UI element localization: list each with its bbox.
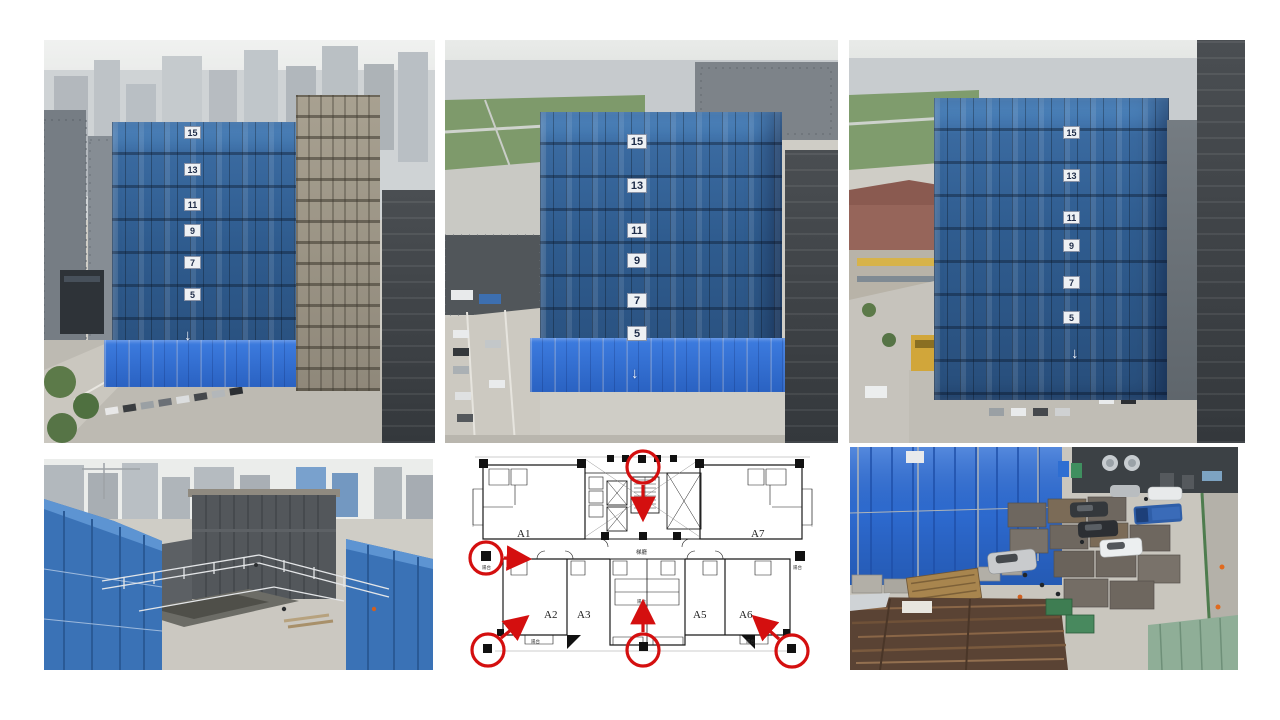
podium-blue-tarp <box>530 338 785 392</box>
marker-arrow-southeast <box>754 617 779 639</box>
left-parking-lanes <box>445 308 540 443</box>
unit-label-A1: A1 <box>517 528 530 540</box>
traffic-cone <box>1220 565 1225 570</box>
balcony-label: 陽台 <box>531 638 540 645</box>
white-tarp <box>902 601 932 613</box>
floor-sign-5: 5 <box>184 288 201 301</box>
tree <box>73 393 99 419</box>
neighbor-building <box>1072 447 1238 493</box>
unit-label-A3: A3 <box>577 609 591 621</box>
floor-sign-11: 11 <box>1063 211 1080 224</box>
warehouse <box>445 235 540 315</box>
unit-label-A5: A5 <box>693 609 707 621</box>
floor-sign-13: 13 <box>184 163 201 176</box>
concrete-core <box>188 489 340 599</box>
hoist-down-arrow-icon: ↓ <box>631 366 639 381</box>
floor-plan-drawing: A1 A2 A3 A5 A6 A7 梯廳 陽台 陽台 陽台 陽台 陽台 <box>455 447 830 675</box>
balcony-label: 陽台 <box>482 564 491 571</box>
scaffold-mesh-right <box>346 539 433 670</box>
portable-toilet-blue <box>1058 461 1069 477</box>
unit-label-A2: A2 <box>544 609 557 621</box>
tree <box>44 366 76 398</box>
unit-label-A7: A7 <box>751 528 765 540</box>
rebar-pile <box>850 593 1068 670</box>
floor-sign-9: 9 <box>627 253 647 268</box>
lobby-label: 梯廳 <box>636 548 648 556</box>
floor-sign-11: 11 <box>627 223 647 238</box>
floor-sign-5: 5 <box>627 326 647 341</box>
tower-blue-mesh <box>934 98 1169 400</box>
progress-photo-montage: 15 13 11 9 7 5 ↓ <box>0 0 1280 720</box>
floor-sign-13: 13 <box>1063 169 1080 182</box>
aerial-photo-northwest: 15 13 11 9 7 5 ↓ <box>44 40 435 443</box>
unit-label-A6: A6 <box>739 609 753 621</box>
site-yard-scene <box>850 447 1238 670</box>
floor-plan-diagram: A1 A2 A3 A5 A6 A7 梯廳 陽台 陽台 陽台 陽台 陽台 <box>455 447 830 675</box>
floor-sign-7: 7 <box>627 293 647 308</box>
floor-sign-7: 7 <box>1063 276 1080 289</box>
floor-sign-11: 11 <box>184 198 201 211</box>
blue-truck <box>1133 503 1182 524</box>
permit-sign <box>906 451 924 463</box>
hoist-down-arrow-icon: ↓ <box>1071 346 1079 361</box>
site-yard-photo <box>850 447 1238 670</box>
awning <box>1202 471 1222 481</box>
floor-sign-15: 15 <box>1063 126 1080 139</box>
adjacent-grey-building <box>1167 120 1199 400</box>
tree <box>47 413 77 443</box>
adjacent-dark-tower <box>1197 40 1245 443</box>
aerial-photo-front: 15 13 11 9 7 5 ↓ <box>445 40 838 443</box>
floor-sign-9: 9 <box>1063 239 1080 252</box>
floor-sign-7: 7 <box>184 256 201 269</box>
portable-toilet-green <box>1071 463 1082 478</box>
floor-sign-15: 15 <box>627 134 647 149</box>
balcony-label: 陽台 <box>746 638 755 645</box>
scaffold-mesh-left <box>44 499 162 670</box>
floor-sign-5: 5 <box>1063 311 1080 324</box>
rooftop-closeup-photo <box>44 459 433 670</box>
marker-arrow-west <box>504 558 529 559</box>
floor-sign-13: 13 <box>627 178 647 193</box>
adjacent-beige-tower <box>296 95 380 391</box>
unit-labels: A1 A2 A3 A5 A6 A7 <box>517 528 765 621</box>
floor-sign-15: 15 <box>184 126 201 139</box>
aerial-photo-northeast: 15 13 11 9 7 5 ↓ <box>849 40 1245 443</box>
rooftop-scene <box>44 459 433 670</box>
adjacent-dark-tower <box>382 190 435 443</box>
adjacent-dark-tower <box>785 150 838 443</box>
hoist-down-arrow-icon: ↓ <box>184 328 192 343</box>
balcony-label: 陽台 <box>793 564 802 571</box>
floor-sign-9: 9 <box>184 224 201 237</box>
